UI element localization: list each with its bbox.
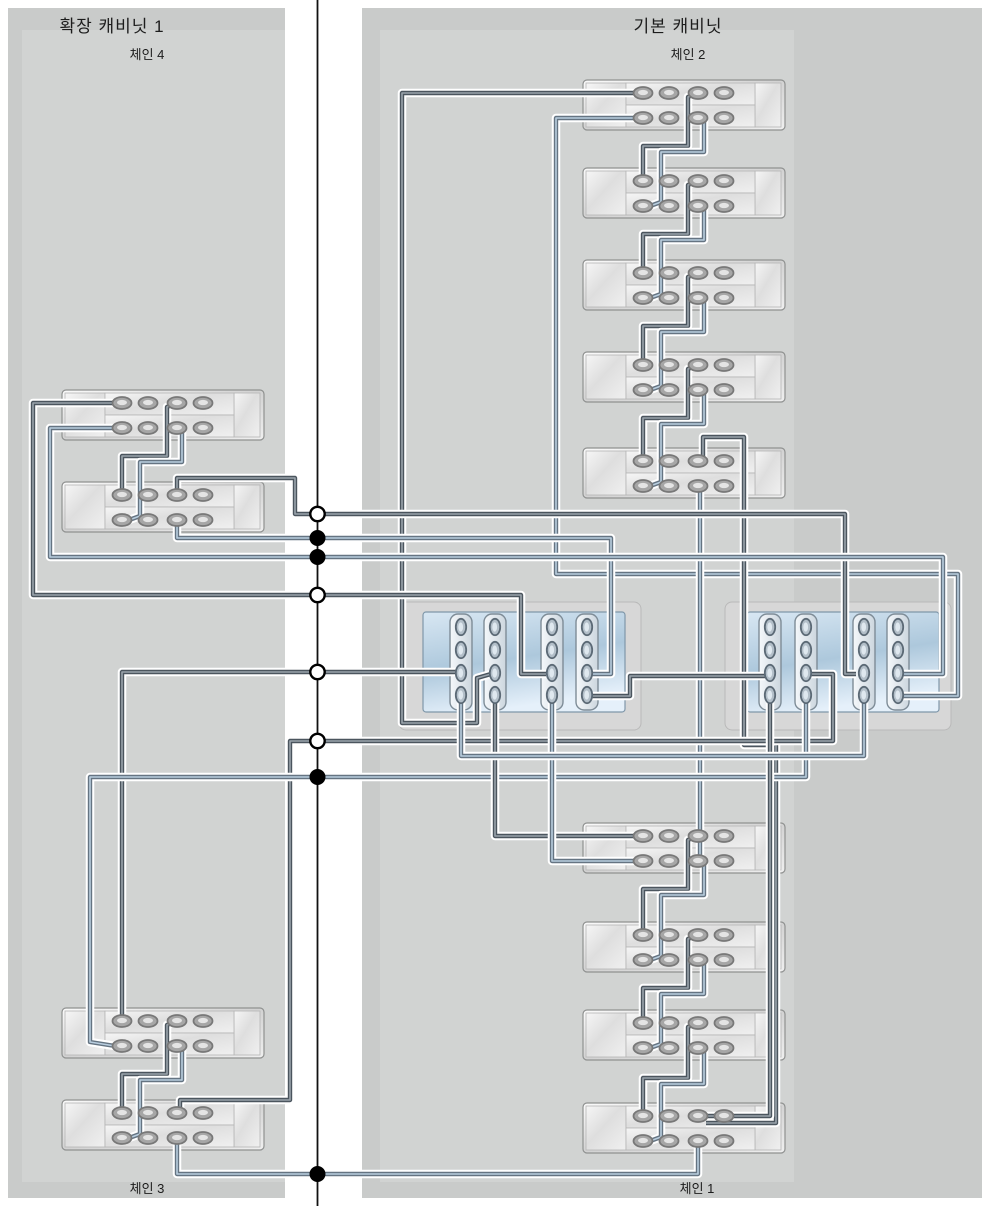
shelf-port (113, 514, 132, 526)
shelf-port (689, 359, 708, 371)
shelf-port (660, 1017, 679, 1029)
controller-port (893, 642, 903, 658)
shelf-port (660, 267, 679, 279)
shelf-port (689, 1110, 708, 1122)
left-cabinet-title: 확장 캐비닛 1 (59, 12, 164, 37)
shelf-port (113, 422, 132, 434)
shelf-port (168, 1040, 187, 1052)
shelf-port (168, 397, 187, 409)
shelf-port (634, 384, 653, 396)
shelf-port (689, 175, 708, 187)
controller-port (893, 687, 903, 703)
shelf-port (660, 200, 679, 212)
controller-port (801, 665, 811, 681)
shelf-port (689, 830, 708, 842)
shelf-port (689, 384, 708, 396)
shelf-port (660, 1110, 679, 1122)
shelf-port (715, 292, 734, 304)
chain-crossing-dot-filled (310, 549, 326, 565)
controller-port (859, 665, 869, 681)
shelf-port (689, 87, 708, 99)
controller-port (456, 642, 466, 658)
shelf-port (660, 855, 679, 867)
shelf-port (139, 397, 158, 409)
shelf-port (715, 855, 734, 867)
shelf-port (715, 455, 734, 467)
shelf-port (660, 830, 679, 842)
shelf-port (660, 292, 679, 304)
shelf-port (634, 1135, 653, 1147)
shelf-port (689, 954, 708, 966)
shelf-port (634, 267, 653, 279)
shelf-port (194, 514, 213, 526)
shelf-port (689, 200, 708, 212)
shelf-port (660, 455, 679, 467)
shelf-port (660, 929, 679, 941)
shelf-port (689, 480, 708, 492)
shelf-port (689, 1135, 708, 1147)
controller-port (456, 687, 466, 703)
controller-port (456, 665, 466, 681)
shelf-port (634, 1110, 653, 1122)
storage-controller (725, 602, 951, 730)
chain-crossing-dot-open (310, 507, 324, 521)
chain-crossing-dot-filled (310, 530, 326, 546)
shelf-port (194, 489, 213, 501)
shelf-port (168, 1132, 187, 1144)
shelf-port (660, 87, 679, 99)
controller-port (893, 619, 903, 635)
shelf-port (113, 1132, 132, 1144)
shelf-port (715, 480, 734, 492)
shelf-port (194, 1015, 213, 1027)
controller-port (547, 665, 557, 681)
shelf-port (660, 480, 679, 492)
shelf-port (194, 422, 213, 434)
shelf-port (139, 1015, 158, 1027)
shelf-port (139, 422, 158, 434)
controller-port (893, 665, 903, 681)
shelf-port (660, 359, 679, 371)
storage-cabling-diagram (0, 0, 986, 1206)
shelf-port (634, 830, 653, 842)
shelf-port (634, 855, 653, 867)
shelf-port (168, 422, 187, 434)
controller-port (765, 665, 775, 681)
controller-port (490, 687, 500, 703)
controller-port (547, 687, 557, 703)
shelf-port (660, 1042, 679, 1054)
shelf-port (168, 514, 187, 526)
controller-port (582, 687, 592, 703)
shelf-port (634, 359, 653, 371)
shelf-port (715, 384, 734, 396)
controller-port (765, 642, 775, 658)
shelf-port (715, 1110, 734, 1122)
shelf-port (194, 1107, 213, 1119)
controller-port (801, 642, 811, 658)
shelf-port (194, 397, 213, 409)
shelf-port (634, 480, 653, 492)
chain-crossing-dot-filled (310, 769, 326, 785)
shelf-port (715, 1017, 734, 1029)
shelf-port (634, 1042, 653, 1054)
shelf-port (689, 855, 708, 867)
controller-port (859, 642, 869, 658)
shelf-port (660, 384, 679, 396)
controller-port (765, 687, 775, 703)
controller-port (765, 619, 775, 635)
shelf-port (113, 1107, 132, 1119)
shelf-port (660, 1135, 679, 1147)
shelf-port (660, 112, 679, 124)
controller-port (582, 642, 592, 658)
shelf-port (168, 489, 187, 501)
shelf-port (168, 1107, 187, 1119)
controller-port (490, 642, 500, 658)
cabling-diagram-page: 확장 캐비닛 1 체인 4 체인 3 기본 캐비닛 체인 2 체인 1 (0, 0, 986, 1206)
shelf-port (689, 1017, 708, 1029)
disk-shelf (62, 482, 264, 532)
shelf-port (634, 954, 653, 966)
controller-port (547, 642, 557, 658)
right-top-chain-label: 체인 2 (671, 44, 706, 63)
shelf-port (634, 292, 653, 304)
controller-port (456, 619, 466, 635)
shelf-port (113, 489, 132, 501)
chain-crossing-dot-filled (310, 1166, 326, 1182)
shelf-port (689, 929, 708, 941)
shelf-port (634, 929, 653, 941)
controller-port (582, 619, 592, 635)
chain-crossing-dot-open (310, 588, 324, 602)
shelf-port (168, 1015, 187, 1027)
chain-crossing-dot-open (310, 665, 324, 679)
shelf-port (194, 1040, 213, 1052)
shelf-port (715, 359, 734, 371)
shelf-port (689, 292, 708, 304)
shelf-port (715, 1042, 734, 1054)
shelf-port (194, 1132, 213, 1144)
shelf-port (715, 954, 734, 966)
shelf-port (715, 1135, 734, 1147)
right-bottom-chain-label: 체인 1 (680, 1178, 715, 1197)
shelf-port (689, 1042, 708, 1054)
shelf-port (689, 267, 708, 279)
shelf-port (139, 1040, 158, 1052)
shelf-port (660, 175, 679, 187)
controller-port (859, 687, 869, 703)
shelf-port (634, 455, 653, 467)
shelf-port (634, 87, 653, 99)
shelf-port (634, 175, 653, 187)
shelf-port (715, 175, 734, 187)
shelf-port (660, 954, 679, 966)
shelf-port (689, 455, 708, 467)
shelf-port (715, 112, 734, 124)
controller-port (490, 619, 500, 635)
shelf-port (634, 200, 653, 212)
controller-port (490, 665, 500, 681)
controller-port (547, 619, 557, 635)
shelf-port (113, 1015, 132, 1027)
shelf-port (113, 397, 132, 409)
controller-port (582, 665, 592, 681)
disk-shelf (583, 448, 785, 498)
shelf-port (715, 267, 734, 279)
shelf-port (689, 112, 708, 124)
disk-shelf (583, 1103, 785, 1153)
shelf-port (139, 514, 158, 526)
shelf-port (715, 929, 734, 941)
chain-crossing-dot-open (310, 734, 324, 748)
left-bottom-chain-label: 체인 3 (130, 1178, 165, 1197)
shelf-port (715, 87, 734, 99)
shelf-port (715, 200, 734, 212)
shelf-port (139, 1107, 158, 1119)
left-top-chain-label: 체인 4 (130, 44, 165, 63)
disk-shelf (62, 1100, 264, 1150)
shelf-port (113, 1040, 132, 1052)
controller-port (801, 619, 811, 635)
controller-port (859, 619, 869, 635)
shelf-port (634, 112, 653, 124)
shelf-port (139, 489, 158, 501)
shelf-port (634, 1017, 653, 1029)
right-cabinet-title: 기본 캐비닛 (634, 12, 723, 37)
shelf-port (139, 1132, 158, 1144)
controller-port (801, 687, 811, 703)
shelf-port (715, 830, 734, 842)
